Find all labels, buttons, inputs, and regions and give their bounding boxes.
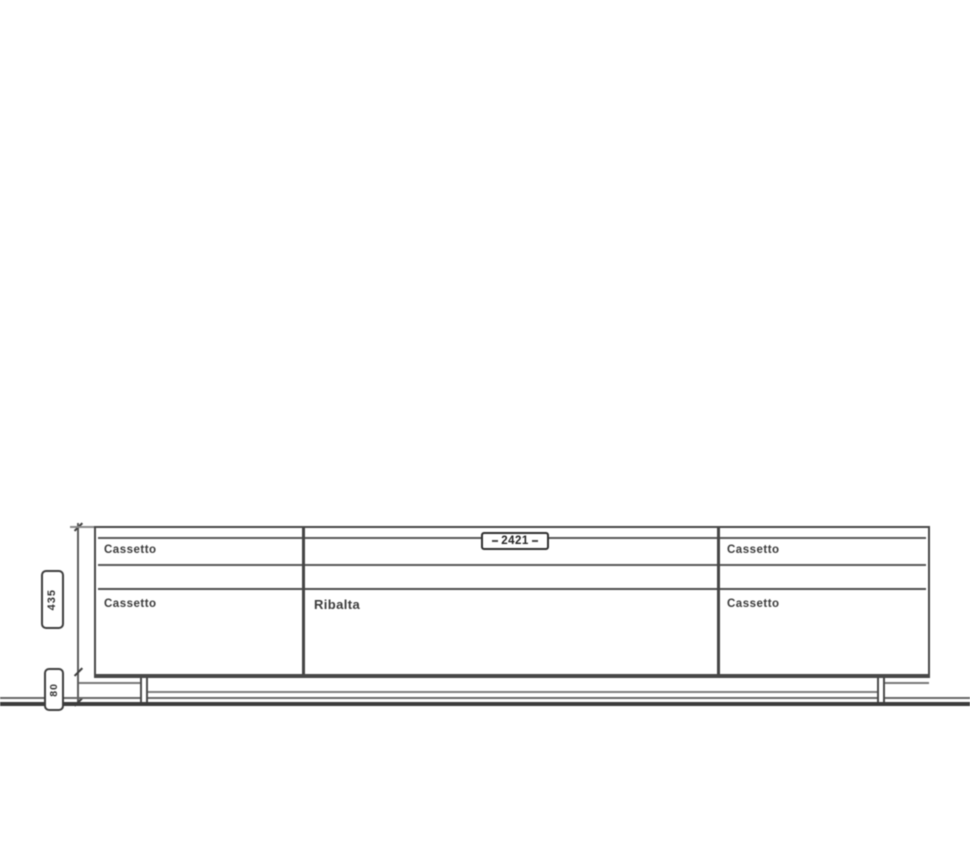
- right-leg: [877, 678, 886, 702]
- left-leg: [140, 678, 149, 702]
- right-section-divider: [717, 528, 720, 675]
- plinth-recess-line: [148, 691, 877, 693]
- left-section-divider: [302, 528, 305, 675]
- furniture-drawing-page: Cassetto Cassetto Ribalta Cassetto Casse…: [0, 0, 970, 857]
- body-height-dimension-value: 435: [47, 589, 58, 610]
- width-dimension-value: 2421: [501, 535, 529, 547]
- ground-line: [0, 702, 970, 706]
- right-bottom-drawer-label: Cassetto: [725, 598, 782, 612]
- width-dimension-box: 2421: [481, 532, 549, 550]
- center-flap-label: Ribalta: [312, 597, 362, 612]
- base-height-dimension-value: 80: [49, 683, 60, 697]
- extension-line-top: [70, 526, 94, 528]
- body-height-dimension-box: 435: [41, 570, 64, 629]
- right-top-drawer-label: Cassetto: [725, 544, 782, 558]
- furniture-elevation-drawing: Cassetto Cassetto Ribalta Cassetto Casse…: [0, 0, 970, 857]
- left-bottom-drawer-label: Cassetto: [102, 598, 159, 612]
- right-underside-step-line: [884, 682, 929, 684]
- lower-front-top-line: [98, 588, 926, 590]
- upper-drawer-bottom-line: [98, 564, 926, 566]
- dimension-tick: [492, 540, 498, 542]
- left-top-drawer-label: Cassetto: [102, 544, 159, 558]
- base-height-dimension-box: 80: [44, 668, 64, 711]
- height-dimension-line: [77, 523, 79, 705]
- left-underside-step-line: [79, 682, 141, 684]
- dimension-tick: [532, 540, 538, 542]
